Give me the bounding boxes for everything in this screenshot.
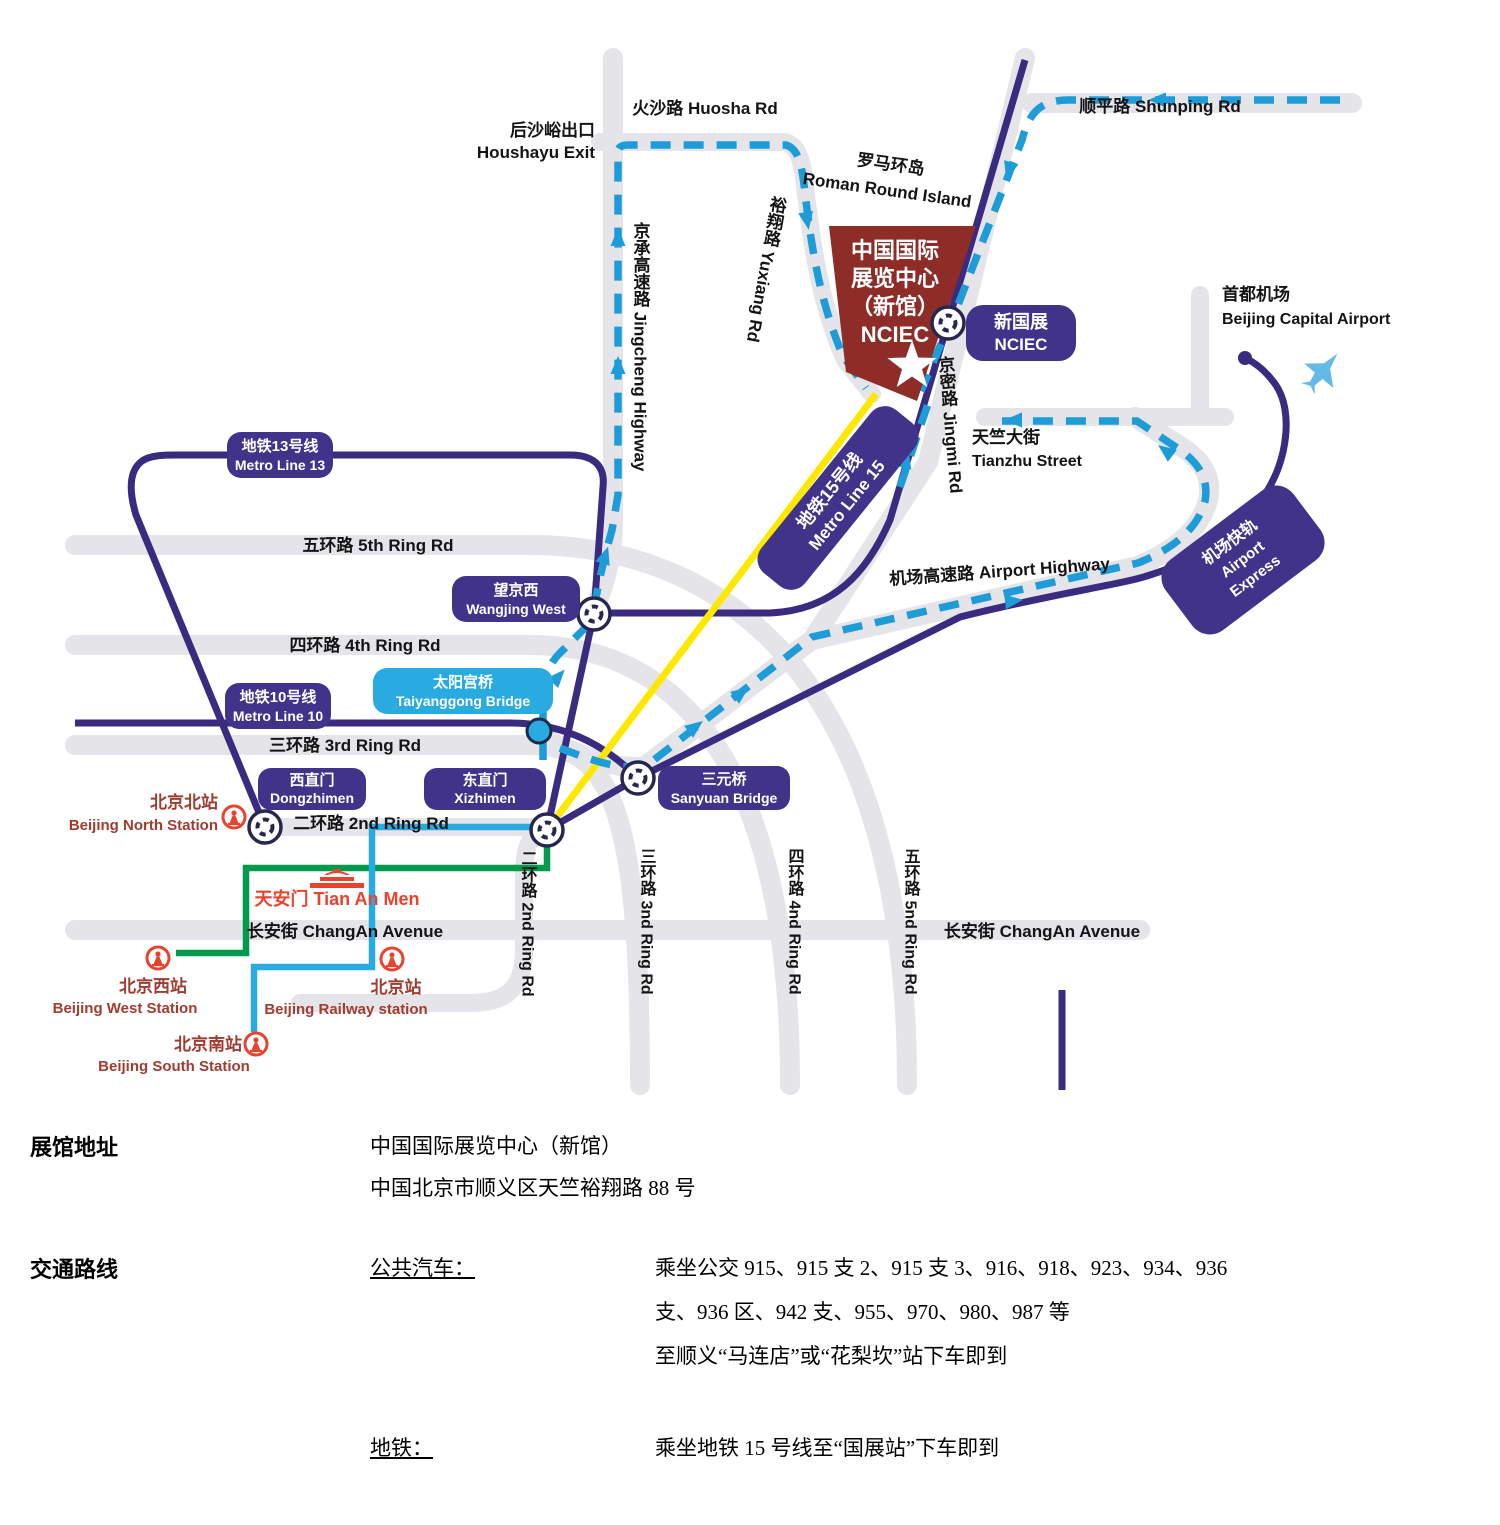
roundabout-icon: [531, 814, 563, 846]
label-changan-left: 长安街 ChangAn Avenue: [247, 921, 443, 941]
bus-line1: 乘坐公交 915、915 支 2、915 支 3、916、918、923、934…: [655, 1252, 1227, 1282]
station-west-cn: 北京西站: [119, 976, 187, 996]
bus-label: 公共汽车：: [370, 1252, 475, 1282]
label-5th-ring-h: 五环路 5th Ring Rd: [302, 535, 453, 555]
badge-nciec: 新国展 NCIEC: [966, 305, 1076, 361]
transit-map: 中国国际 展览中心 （新馆） NCIEC 地铁13号线 Metro Line 1…: [0, 0, 1500, 1100]
label-tianzhu-cn: 天竺大街: [972, 427, 1040, 447]
airport-terminus-dot: [1238, 351, 1252, 365]
badge-label: 太阳宫桥: [433, 673, 494, 691]
label-4th-ring-h: 四环路 4th Ring Rd: [289, 635, 440, 655]
roundabout-icon: [578, 598, 610, 630]
transport-section-label: 交通路线: [30, 1252, 118, 1284]
label-huosha-rd: 火沙路 Huosha Rd: [632, 98, 777, 118]
label-tianzhu-en: Tianzhu Street: [972, 453, 1083, 470]
label-houshayu-en: Houshayu Exit: [477, 143, 595, 162]
badge-xizhimen: 东直门 Xizhimen: [424, 768, 546, 810]
label-shunping-rd: 顺平路 Shunping Rd: [1079, 96, 1240, 116]
badge-metro-line13: 地铁13号线 Metro Line 13: [227, 432, 333, 478]
address-line1: 中国国际展览中心（新馆）: [370, 1130, 622, 1160]
badge-label: 东直门: [462, 771, 507, 789]
badge-taiyanggong-bridge: 太阳宫桥 Taiyanggong Bridge: [373, 668, 553, 714]
address-line2: 中国北京市顺义区天竺裕翔路 88 号: [370, 1172, 696, 1202]
roundabout-icon: [932, 307, 964, 339]
label-roman-round-island: 罗马环岛 Roman Round Island: [802, 142, 977, 211]
badge-label: 西直门: [289, 771, 334, 789]
station-rail-cn: 北京站: [371, 977, 422, 997]
label-houshayu-cn: 后沙峪出口: [510, 120, 595, 140]
tiananmen-icon: [310, 869, 364, 888]
label-2nd-ring-v: 二环路 2nd Ring Rd: [519, 850, 538, 997]
label-3rd-ring-v: 三环路 3nd Ring Rd: [638, 848, 657, 995]
nciec-access-map-page: 中国国际 展览中心 （新馆） NCIEC 地铁13号线 Metro Line 1…: [0, 0, 1500, 1525]
label-4th-ring-v: 四环路 4nd Ring Rd: [786, 848, 805, 995]
label-yuxiang-text: 裕翔路 Yuxiang Rd: [743, 193, 789, 344]
roundabout-icon: [622, 762, 654, 794]
station-west-en: Beijing West Station: [53, 1000, 198, 1017]
nciec-building-line3: （新馆）: [851, 294, 939, 319]
railway-station-icon: [381, 948, 403, 970]
nciec-building-line4: NCIEC: [861, 322, 930, 347]
badge-label: Dongzhimen: [270, 790, 354, 806]
badge-label: 望京西: [493, 581, 538, 599]
badge-sanyuan-bridge: 三元桥 Sanyuan Bridge: [658, 766, 790, 810]
road-2nd-ring-loop: [300, 830, 547, 1003]
nciec-building-line2: 展览中心: [851, 266, 939, 291]
label-roman-cn: 罗马环岛: [856, 149, 926, 178]
label-capital-airport-cn: 首都机场: [1222, 284, 1290, 304]
roundabout-icon: [249, 811, 281, 843]
badge-label: Metro Line 10: [233, 708, 323, 724]
airplane-icon: [1293, 341, 1352, 401]
badge-label: Wangjing West: [466, 601, 566, 617]
label-capital-airport-en: Beijing Capital Airport: [1222, 311, 1391, 328]
label-tiananmen: 天安门 Tian An Men: [254, 888, 419, 909]
badge-label: 地铁10号线: [240, 688, 317, 706]
badge-airport-express: 机场快轨 Airport Express: [1153, 477, 1334, 644]
badge-label: 三元桥: [701, 770, 747, 788]
badge-label: 新国展: [994, 311, 1049, 332]
label-changan-right: 长安街 ChangAn Avenue: [944, 921, 1140, 941]
metro-line1: 乘坐地铁 15 号线至“国展站”下车即到: [655, 1432, 999, 1462]
badge-label: Xizhimen: [454, 790, 515, 806]
railway-station-icon: [147, 947, 169, 969]
station-rail-en: Beijing Railway station: [264, 1001, 427, 1018]
nciec-building-line1: 中国国际: [851, 238, 939, 263]
station-south-cn: 北京南站: [174, 1034, 242, 1054]
station-south-en: Beijing South Station: [98, 1058, 250, 1075]
badge-metro-line10: 地铁10号线 Metro Line 10: [225, 683, 331, 729]
label-yuxiang-rd: 裕翔路 Yuxiang Rd: [743, 193, 789, 344]
taiyanggong-station-dot: [527, 719, 551, 743]
station-north-en: Beijing North Station: [69, 817, 218, 834]
bus-line2: 支、936 区、942 支、955、970、980、987 等: [655, 1296, 1070, 1326]
station-north-cn: 北京北站: [150, 792, 218, 812]
badge-label: NCIEC: [995, 335, 1048, 354]
label-jingcheng-highway: 京承高速路 Jingcheng Highway: [631, 221, 651, 472]
badge-label: Sanyuan Bridge: [671, 790, 778, 806]
address-section-label: 展馆地址: [30, 1130, 118, 1162]
badge-dongzhimen: 西直门 Dongzhimen: [258, 768, 366, 810]
bus-line3: 至顺义“马连店”或“花梨坎”站下车即到: [655, 1340, 1007, 1370]
badge-label: 地铁13号线: [242, 437, 319, 455]
railway-station-icon: [245, 1033, 267, 1055]
metro-label: 地铁：: [370, 1432, 433, 1462]
badge-label: Taiyanggong Bridge: [396, 693, 531, 709]
badge-wangjing-west: 望京西 Wangjing West: [452, 576, 580, 622]
label-3rd-ring-h: 三环路 3rd Ring Rd: [269, 735, 421, 755]
label-5th-ring-v: 五环路 5nd Ring Rd: [902, 848, 921, 995]
railway-station-icon: [223, 806, 245, 828]
label-2nd-ring-h: 二环路 2nd Ring Rd: [293, 813, 449, 833]
label-roman-en: Roman Round Island: [802, 169, 973, 211]
badge-label: Metro Line 13: [235, 457, 325, 473]
